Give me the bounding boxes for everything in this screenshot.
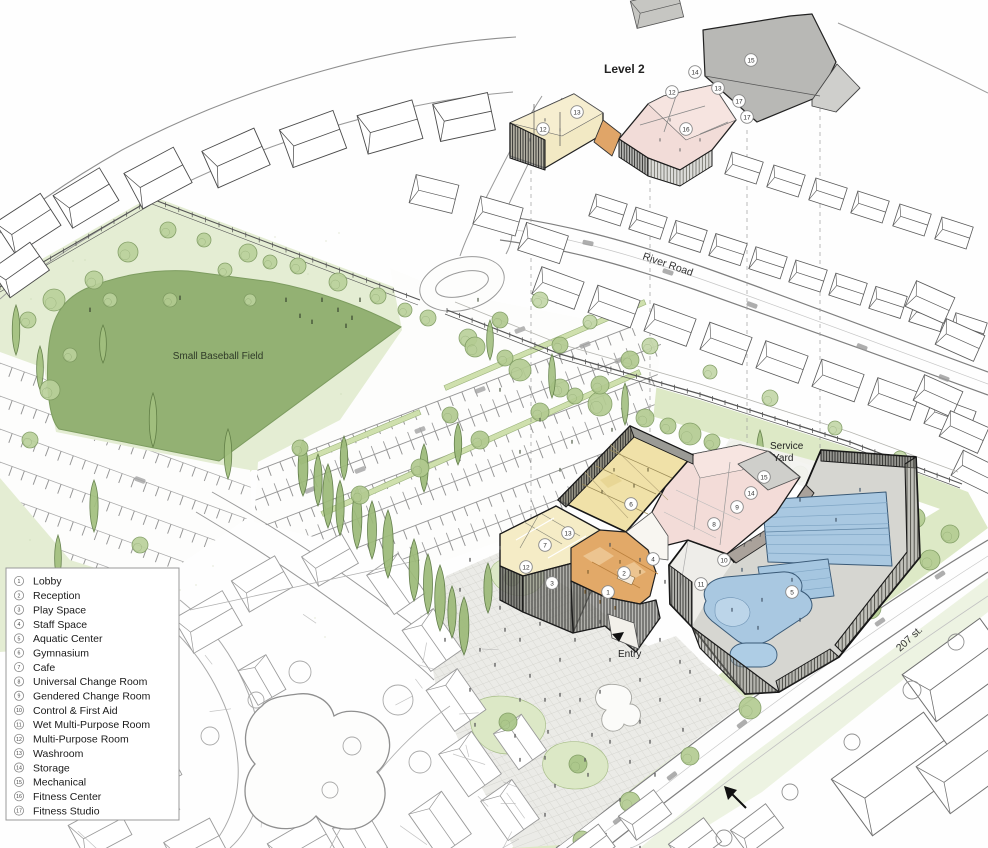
svg-text:17: 17 [743,114,751,121]
svg-text:Level 2: Level 2 [604,62,645,76]
svg-text:Lobby: Lobby [33,576,62,588]
svg-text:12: 12 [16,737,22,743]
svg-text:5: 5 [790,589,794,596]
svg-text:17: 17 [735,98,743,105]
svg-text:Gendered Change Room: Gendered Change Room [33,691,151,703]
svg-text:Staff Space: Staff Space [33,619,87,631]
svg-text:6: 6 [18,651,21,657]
svg-text:1: 1 [18,579,21,585]
svg-text:Mechanical: Mechanical [33,777,86,789]
svg-text:13: 13 [573,109,581,116]
svg-text:Washroom: Washroom [33,748,84,760]
svg-text:15: 15 [747,57,755,64]
svg-text:16: 16 [16,794,22,800]
svg-text:3: 3 [18,608,21,614]
svg-text:Storage: Storage [33,762,70,774]
svg-text:13: 13 [16,751,22,757]
svg-text:Play Space: Play Space [33,604,86,616]
svg-text:11: 11 [698,581,705,588]
svg-text:7: 7 [543,542,547,549]
svg-text:13: 13 [564,530,572,537]
svg-text:12: 12 [539,126,547,133]
svg-text:Multi-Purpose Room: Multi-Purpose Room [33,734,129,746]
svg-text:4: 4 [18,622,21,628]
svg-text:8: 8 [712,521,716,528]
svg-text:2: 2 [18,593,21,599]
svg-text:14: 14 [16,765,22,771]
svg-text:9: 9 [18,694,21,700]
svg-text:3: 3 [550,580,554,587]
svg-text:16: 16 [682,126,690,133]
svg-text:8: 8 [18,679,21,685]
svg-text:2: 2 [622,570,626,577]
svg-text:14: 14 [747,490,755,497]
svg-text:Fitness Center: Fitness Center [33,791,102,803]
svg-text:12: 12 [668,89,676,96]
svg-text:10: 10 [16,708,22,714]
svg-text:14: 14 [691,69,699,76]
svg-text:15: 15 [16,780,22,786]
svg-text:9: 9 [735,504,739,511]
svg-text:15: 15 [760,474,768,481]
svg-text:Entry: Entry [618,649,641,660]
svg-text:11: 11 [16,722,21,728]
svg-text:10: 10 [720,557,728,564]
svg-text:7: 7 [18,665,21,671]
svg-text:Control & First Aid: Control & First Aid [33,705,118,717]
svg-text:17: 17 [16,809,22,815]
svg-text:Universal Change Room: Universal Change Room [33,676,148,688]
svg-text:Wet Multi-Purpose Room: Wet Multi-Purpose Room [33,719,150,731]
svg-text:1: 1 [606,589,610,596]
svg-text:13: 13 [714,85,722,92]
svg-text:Fitness Studio: Fitness Studio [33,805,100,817]
svg-text:Service: Service [770,441,804,452]
svg-text:5: 5 [18,636,21,642]
svg-text:12: 12 [522,564,530,571]
svg-text:Cafe: Cafe [33,662,55,674]
svg-text:Small Baseball Field: Small Baseball Field [173,351,264,362]
svg-text:6: 6 [629,501,633,508]
svg-text:Gymnasium: Gymnasium [33,647,89,659]
svg-text:Reception: Reception [33,590,80,602]
svg-text:Aquatic Center: Aquatic Center [33,633,103,645]
svg-text:4: 4 [651,556,655,563]
svg-text:Yard: Yard [773,453,793,464]
